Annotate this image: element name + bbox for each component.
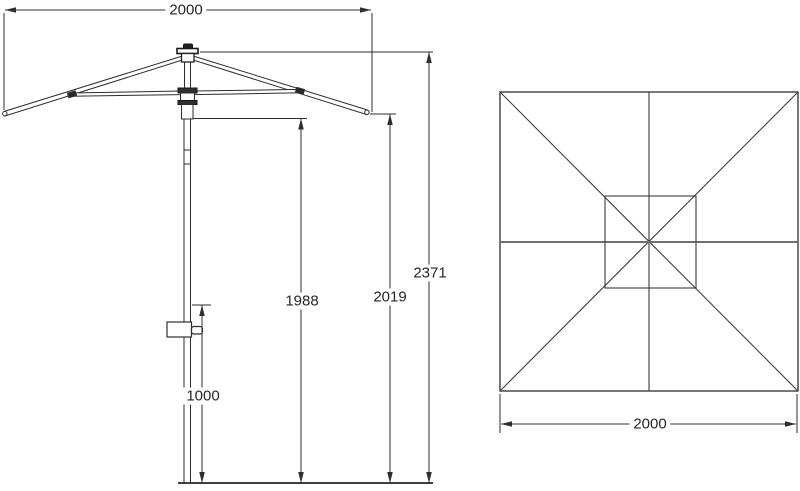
label-total-height: 2371 bbox=[409, 265, 450, 282]
runner-collar bbox=[182, 105, 194, 120]
crank-housing bbox=[167, 322, 192, 337]
crank-mechanism bbox=[167, 322, 203, 337]
crank-knob bbox=[192, 327, 203, 335]
umbrella-rib-left bbox=[4, 56, 184, 117]
label-rib-tip-height: 2019 bbox=[369, 289, 410, 306]
top-view bbox=[500, 92, 798, 391]
label-canopy-clearance: 1988 bbox=[281, 293, 322, 310]
pole-upper bbox=[185, 62, 191, 88]
rib-tip-cap-right bbox=[365, 110, 369, 114]
side-view-dimensions bbox=[4, 7, 433, 483]
label-top-view-width: 2000 bbox=[629, 416, 670, 433]
technical-drawing-canvas: 2000 2371 2019 1988 1000 2000 bbox=[0, 0, 800, 491]
top-hub bbox=[182, 54, 195, 63]
pole-lower bbox=[184, 119, 191, 483]
umbrella-stretcher-left bbox=[71, 91, 181, 96]
rib-tip-cap-left bbox=[3, 111, 7, 115]
runner-hub bbox=[178, 88, 197, 119]
label-crank-height: 1000 bbox=[182, 388, 223, 405]
parasol-drawing bbox=[0, 0, 800, 491]
dim-total-height bbox=[200, 52, 433, 483]
side-view bbox=[3, 44, 433, 483]
label-side-width: 2000 bbox=[165, 2, 206, 19]
umbrella-rib-right bbox=[192, 56, 368, 115]
umbrella-stretcher-right bbox=[194, 89, 301, 94]
